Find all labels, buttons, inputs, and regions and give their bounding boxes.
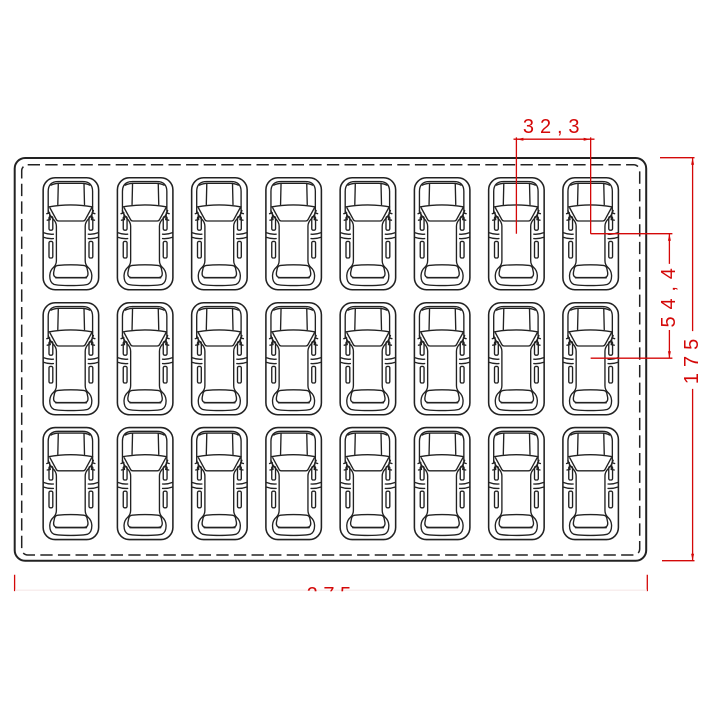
svg-text:54,4: 54,4 [658, 261, 680, 327]
svg-text:32,3: 32,3 [523, 116, 586, 138]
svg-text:175: 175 [681, 333, 703, 384]
